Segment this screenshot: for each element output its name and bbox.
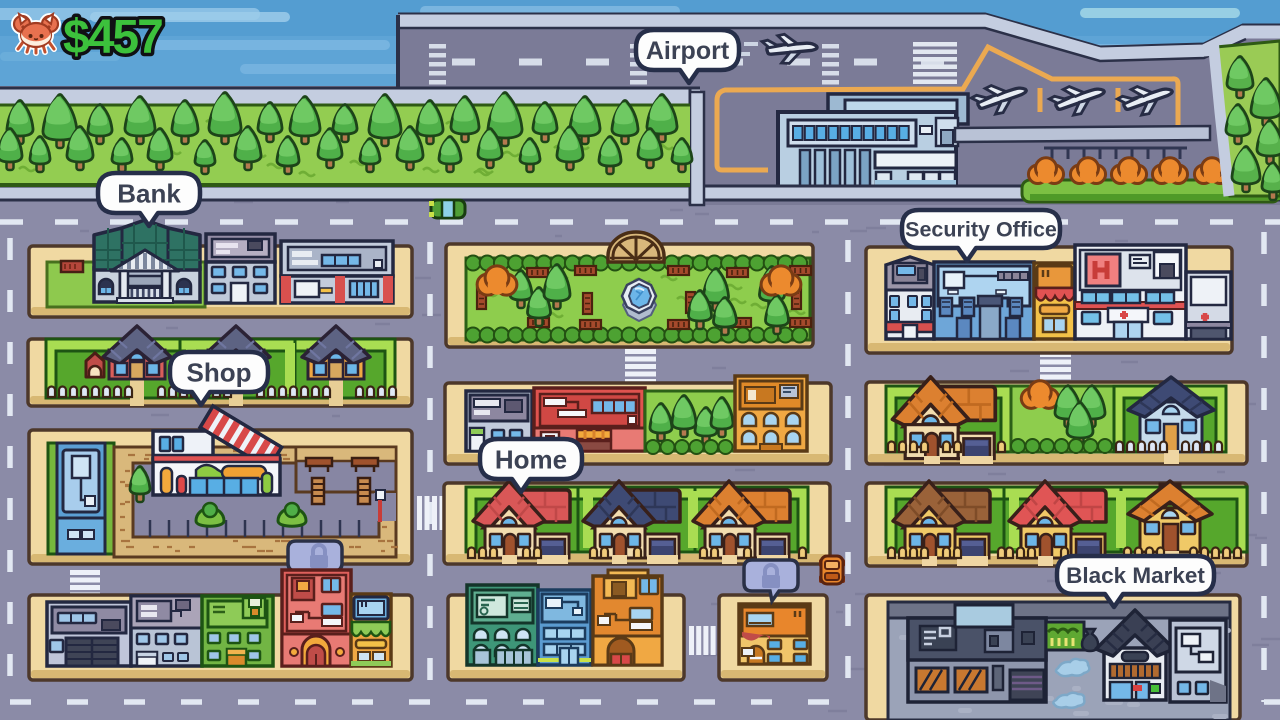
svg-text:$457: $457 (63, 11, 162, 64)
svg-text:Home: Home (495, 444, 567, 474)
svg-text:Airport: Airport (646, 37, 730, 65)
svg-text:Bank: Bank (117, 178, 181, 208)
svg-text:Security Office: Security Office (905, 218, 1057, 242)
svg-text:Black Market: Black Market (1066, 563, 1205, 588)
svg-text:Shop: Shop (187, 357, 252, 387)
